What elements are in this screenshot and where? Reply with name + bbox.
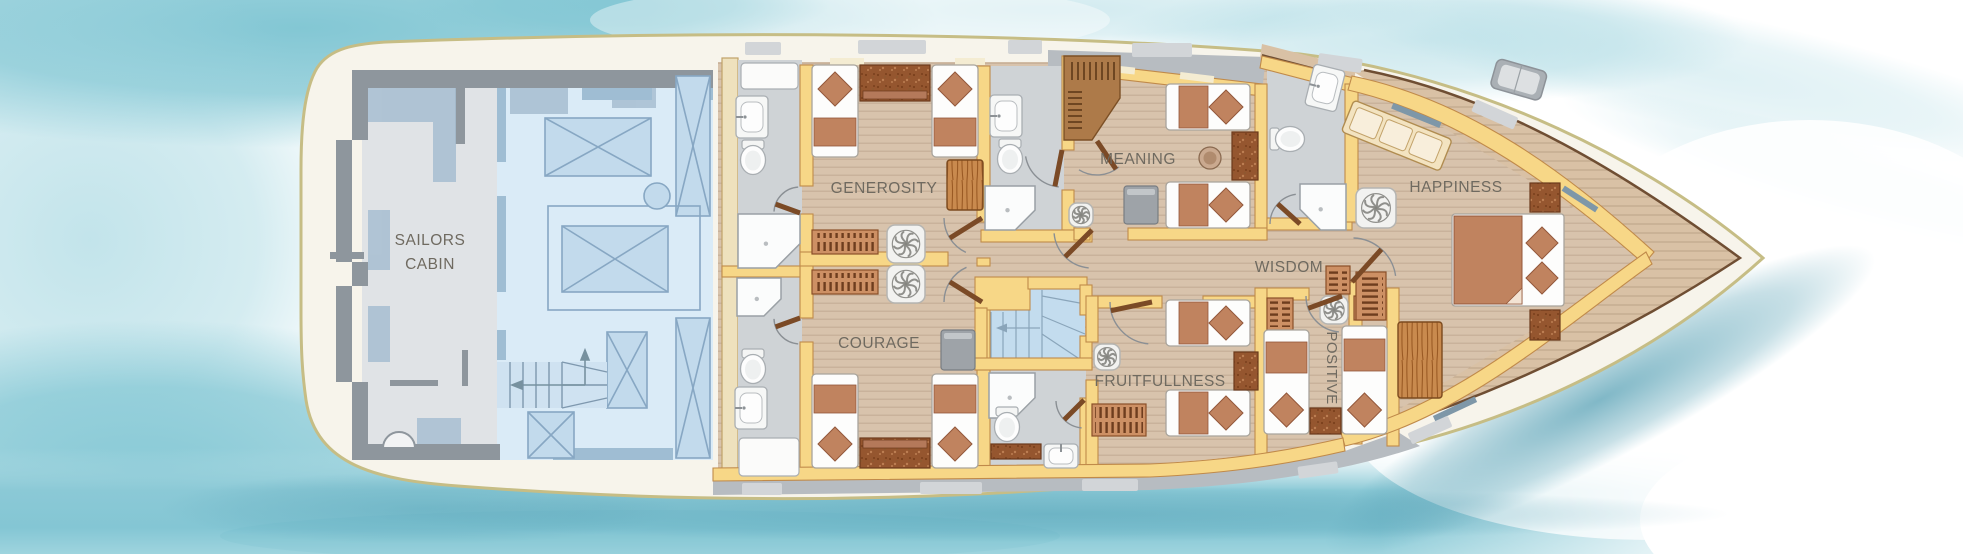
svg-text:WISDOM: WISDOM (1255, 259, 1323, 276)
svg-text:MEANING: MEANING (1100, 151, 1176, 168)
svg-text:GENEROSITY: GENEROSITY (831, 180, 938, 197)
svg-text:HAPPINESS: HAPPINESS (1409, 179, 1502, 196)
svg-text:FRUITFULLNESS: FRUITFULLNESS (1095, 373, 1226, 390)
svg-text:POSITIVE: POSITIVE (1323, 331, 1340, 404)
svg-text:CABIN: CABIN (405, 256, 455, 273)
svg-text:COURAGE: COURAGE (838, 335, 920, 352)
svg-text:SAILORS: SAILORS (395, 232, 466, 249)
